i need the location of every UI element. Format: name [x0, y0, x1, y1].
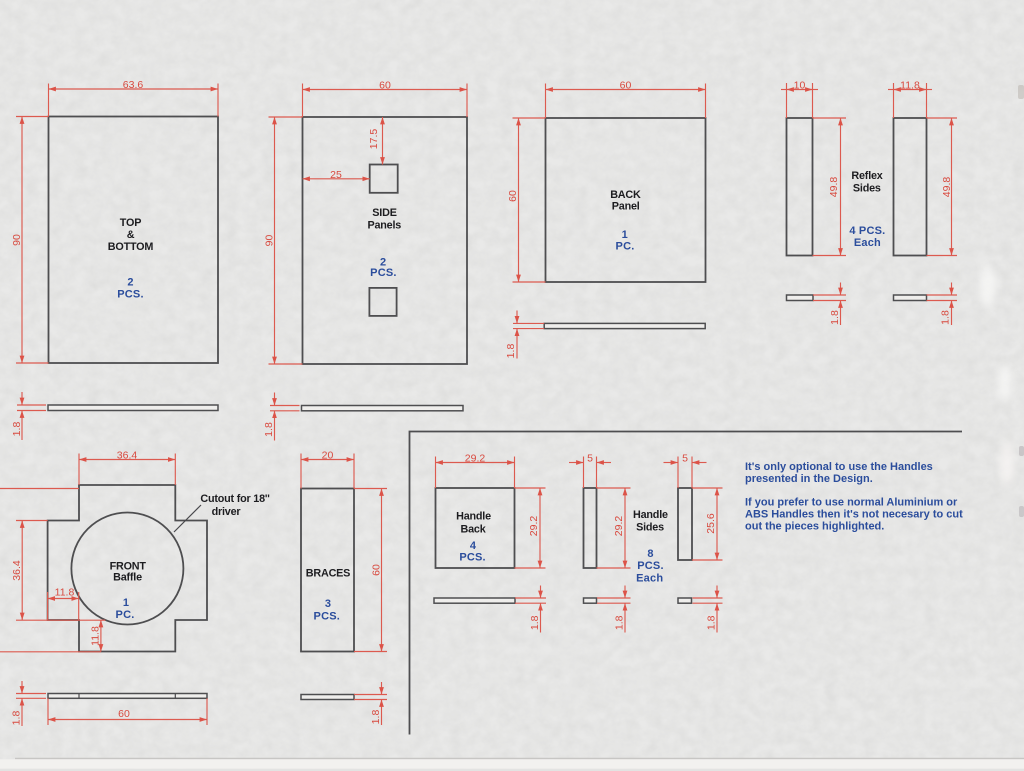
svg-text:4 PCS.: 4 PCS.: [849, 225, 885, 237]
svg-text:49.8: 49.8: [828, 177, 840, 198]
svg-text:1: 1: [123, 597, 129, 609]
svg-text:4: 4: [470, 540, 477, 552]
svg-text:SIDE: SIDE: [372, 207, 396, 219]
svg-text:Sides: Sides: [636, 522, 664, 534]
svg-text:60: 60: [379, 80, 391, 92]
svg-text:11.8: 11.8: [900, 80, 920, 92]
svg-text:PCS.: PCS.: [459, 552, 485, 564]
svg-text:Baffle: Baffle: [113, 572, 142, 584]
svg-text:Cutout for 18'': Cutout for 18'': [200, 493, 270, 505]
svg-text:2: 2: [127, 277, 133, 289]
svg-text:11.8: 11.8: [55, 587, 75, 599]
svg-text:1.8: 1.8: [529, 615, 541, 630]
svg-text:Sides: Sides: [853, 183, 881, 195]
svg-text:49.8: 49.8: [941, 177, 953, 198]
svg-text:60: 60: [507, 190, 519, 202]
svg-text:60: 60: [620, 80, 632, 92]
svg-text:1.8: 1.8: [11, 711, 23, 726]
svg-text:8: 8: [647, 548, 653, 560]
svg-text:63.6: 63.6: [123, 79, 144, 91]
svg-text:1.8: 1.8: [940, 310, 952, 325]
svg-text:29.2: 29.2: [465, 453, 486, 465]
svg-text:25.6: 25.6: [705, 513, 717, 534]
svg-text:It's only optional to use the: It's only optional to use the Handles: [745, 461, 933, 473]
svg-text:29.2: 29.2: [528, 516, 540, 537]
svg-text:11.8: 11.8: [90, 626, 102, 646]
svg-text:BACK: BACK: [610, 189, 641, 201]
svg-text:1.8: 1.8: [370, 710, 382, 725]
svg-text:25: 25: [330, 169, 342, 181]
svg-text:Panel: Panel: [612, 201, 640, 213]
svg-text:5: 5: [587, 453, 593, 465]
svg-text:PCS.: PCS.: [637, 560, 663, 572]
svg-text:1.8: 1.8: [829, 310, 841, 325]
svg-text:PCS.: PCS.: [314, 611, 340, 623]
svg-text:PCS.: PCS.: [370, 267, 396, 279]
svg-text:&: &: [127, 229, 135, 241]
svg-text:TOP: TOP: [120, 217, 141, 229]
svg-text:3: 3: [325, 598, 331, 610]
svg-text:36.4: 36.4: [11, 560, 23, 581]
svg-text:1.8: 1.8: [706, 615, 718, 630]
svg-text:1.8: 1.8: [11, 422, 23, 437]
svg-text:Handle: Handle: [633, 509, 668, 521]
svg-text:Each: Each: [854, 237, 881, 249]
svg-text:Panels: Panels: [367, 219, 401, 231]
svg-text:out the pieces highlighted.: out the pieces highlighted.: [745, 521, 884, 533]
svg-text:PC.: PC.: [616, 241, 635, 253]
svg-text:29.2: 29.2: [613, 516, 625, 537]
svg-text:Handle: Handle: [456, 511, 491, 523]
svg-text:1.8: 1.8: [505, 344, 517, 359]
svg-text:Reflex: Reflex: [851, 170, 882, 182]
svg-text:36.4: 36.4: [117, 450, 138, 462]
svg-text:presented in the Design.: presented in the Design.: [745, 473, 873, 485]
svg-text:If you prefer to use normal Al: If you prefer to use normal Aluminium or: [745, 497, 958, 509]
svg-text:20: 20: [322, 450, 334, 462]
svg-text:PCS.: PCS.: [117, 289, 143, 301]
svg-text:1.8: 1.8: [263, 422, 275, 437]
svg-text:17.5: 17.5: [368, 129, 380, 150]
svg-text:BOTTOM: BOTTOM: [108, 241, 154, 253]
svg-text:1.8: 1.8: [614, 615, 626, 630]
svg-text:driver: driver: [212, 506, 242, 518]
svg-text:10: 10: [794, 80, 806, 92]
svg-text:PC.: PC.: [116, 609, 135, 621]
svg-text:5: 5: [682, 453, 688, 465]
svg-text:90: 90: [264, 235, 276, 247]
svg-text:60: 60: [118, 708, 130, 720]
svg-text:BRACES: BRACES: [306, 568, 350, 580]
svg-text:Back: Back: [460, 524, 486, 536]
svg-text:1: 1: [622, 229, 628, 241]
svg-text:ABS Handles then it's not nece: ABS Handles then it's not necesary to cu…: [745, 509, 963, 521]
svg-text:90: 90: [11, 234, 23, 246]
svg-text:60: 60: [371, 564, 383, 576]
svg-text:Each: Each: [636, 573, 663, 585]
